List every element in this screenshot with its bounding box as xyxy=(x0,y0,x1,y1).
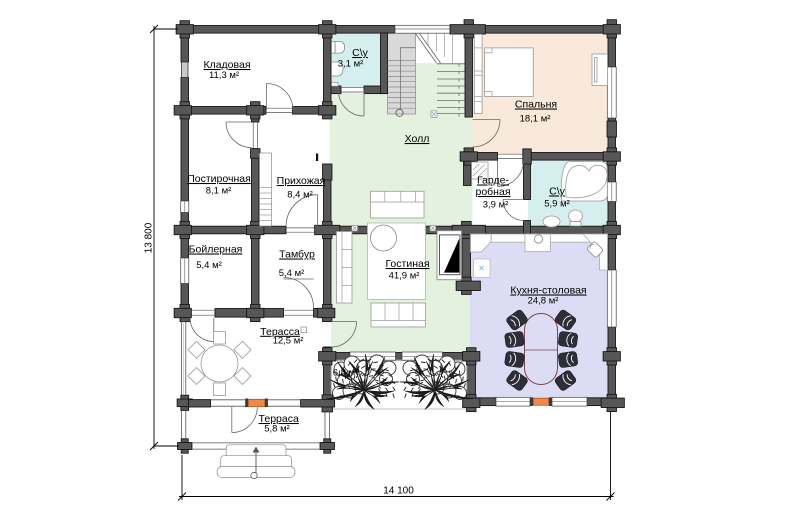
svg-text:3,9 м²: 3,9 м² xyxy=(483,200,509,211)
svg-text:5,4 м²: 5,4 м² xyxy=(279,268,305,279)
svg-text:С\у: С\у xyxy=(352,47,369,59)
svg-text:робная: робная xyxy=(475,186,510,198)
svg-text:Холл: Холл xyxy=(405,133,430,145)
svg-text:5,9 м²: 5,9 м² xyxy=(544,199,570,210)
svg-text:11,3 м²: 11,3 м² xyxy=(209,70,239,81)
svg-text:Тамбур: Тамбур xyxy=(279,249,315,261)
svg-text:Постирочная: Постирочная xyxy=(187,173,251,185)
svg-text:Гостиная: Гостиная xyxy=(385,258,429,270)
svg-text:12,5 м²: 12,5 м² xyxy=(273,336,304,347)
svg-text:Бойлерная: Бойлерная xyxy=(189,244,243,256)
svg-text:8,1 м²: 8,1 м² xyxy=(206,186,232,197)
svg-text:Гарде-: Гарде- xyxy=(477,175,510,187)
svg-text:24,8 м²: 24,8 м² xyxy=(528,295,559,306)
svg-text:С\у: С\у xyxy=(549,186,566,198)
svg-text:41,9 м²: 41,9 м² xyxy=(389,271,420,282)
svg-text:5,4 м²: 5,4 м² xyxy=(196,260,222,271)
svg-text:18,1 м²: 18,1 м² xyxy=(520,114,551,125)
svg-text:5,8 м²: 5,8 м² xyxy=(264,424,290,435)
svg-text:8,4 м²: 8,4 м² xyxy=(287,190,313,201)
svg-text:3,1 м²: 3,1 м² xyxy=(338,58,364,69)
svg-text:14 100: 14 100 xyxy=(383,486,414,497)
svg-text:6,8 м²: 6,8 м² xyxy=(333,368,359,379)
svg-text:13 800: 13 800 xyxy=(144,222,155,253)
svg-text:Спальня: Спальня xyxy=(515,99,557,111)
svg-text:Прихожая: Прихожая xyxy=(277,175,326,187)
